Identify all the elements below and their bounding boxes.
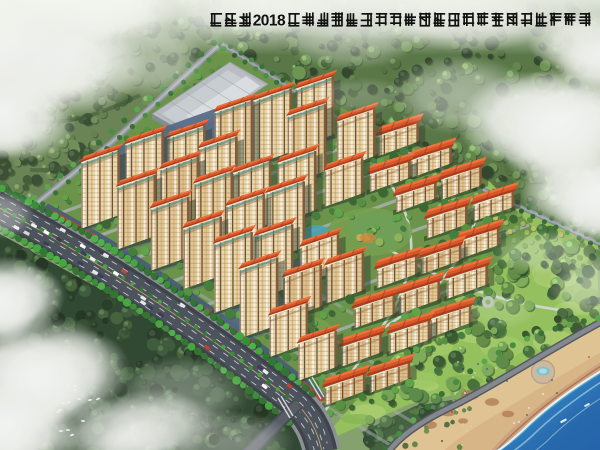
svg-text:2018: 2018 bbox=[253, 12, 286, 29]
